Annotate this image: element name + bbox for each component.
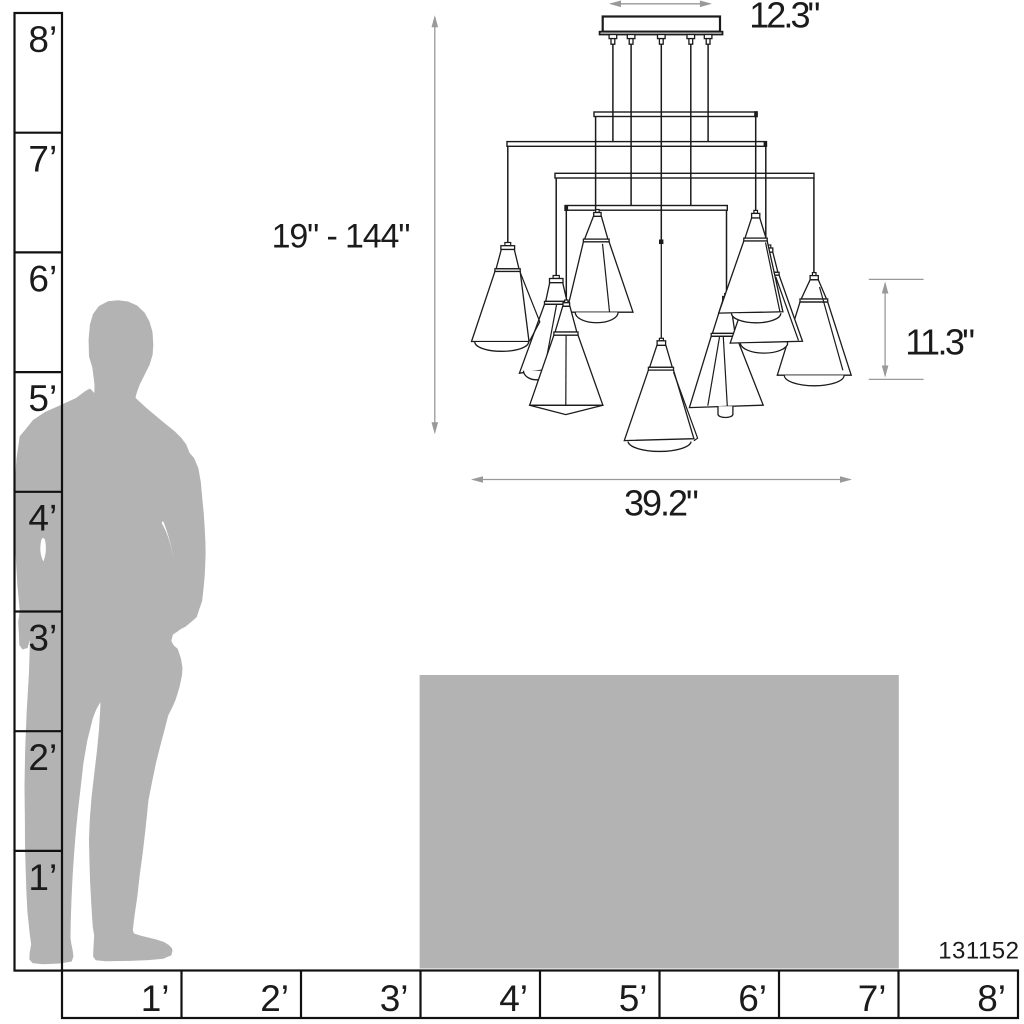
svg-text:1’: 1’ <box>28 857 57 898</box>
svg-text:11.3": 11.3" <box>905 322 974 363</box>
svg-text:4’: 4’ <box>499 978 528 1019</box>
svg-text:2’: 2’ <box>260 978 289 1019</box>
svg-text:1’: 1’ <box>141 978 170 1019</box>
svg-text:19" - 144": 19" - 144" <box>272 218 410 256</box>
svg-text:5’: 5’ <box>28 378 57 419</box>
svg-text:4’: 4’ <box>28 498 57 539</box>
svg-text:6’: 6’ <box>28 258 57 299</box>
svg-text:8’: 8’ <box>28 19 57 60</box>
svg-text:2’: 2’ <box>28 737 57 778</box>
svg-text:5’: 5’ <box>619 978 648 1019</box>
svg-text:39.2": 39.2" <box>624 483 698 524</box>
svg-text:131152: 131152 <box>938 938 1019 965</box>
svg-text:6’: 6’ <box>738 978 767 1019</box>
svg-text:3’: 3’ <box>380 978 409 1019</box>
svg-text:8’: 8’ <box>977 978 1006 1019</box>
svg-text:7’: 7’ <box>858 978 887 1019</box>
svg-text:7’: 7’ <box>28 139 57 180</box>
svg-text:3’: 3’ <box>28 617 57 658</box>
svg-text:12.3": 12.3" <box>749 0 819 36</box>
